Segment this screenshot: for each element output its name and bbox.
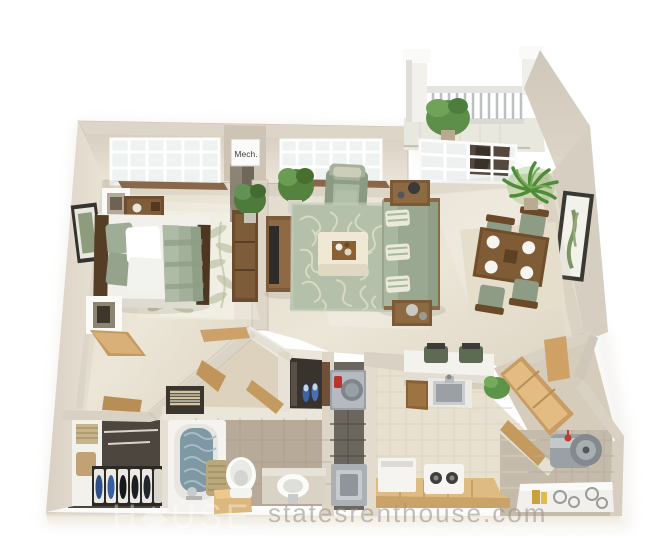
- svg-text:statesrenthouse.com: statesrenthouse.com: [268, 498, 547, 528]
- svg-text:Mech.: Mech.: [234, 149, 257, 159]
- svg-text:H◆USE: H◆USE: [112, 498, 253, 536]
